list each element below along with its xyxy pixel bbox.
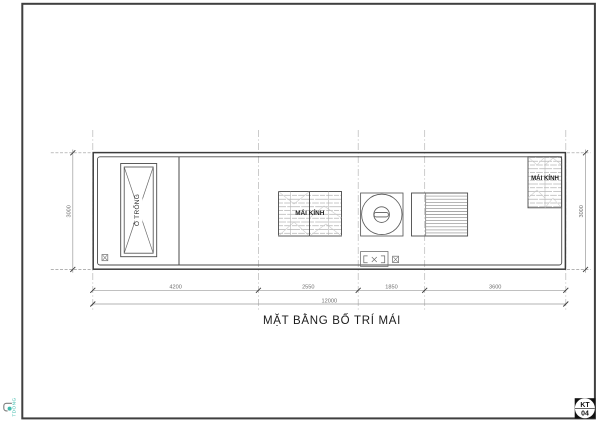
svg-text:KT: KT [580, 402, 590, 409]
svg-text:04: 04 [581, 411, 589, 418]
svg-text:MẶT BẰNG BỐ TRÍ MÁI: MẶT BẰNG BỐ TRÍ MÁI [263, 313, 401, 327]
svg-text:MÁI KÍNH: MÁI KÍNH [295, 208, 324, 217]
svg-text:2550: 2550 [302, 285, 314, 291]
svg-text:3000: 3000 [579, 205, 585, 217]
svg-text:1850: 1850 [385, 285, 397, 291]
svg-text:4200: 4200 [169, 285, 181, 291]
svg-text:MÁI KÍNH: MÁI KÍNH [531, 174, 559, 182]
svg-text:12000: 12000 [322, 298, 338, 304]
svg-text:3000: 3000 [67, 205, 73, 217]
svg-text:3600: 3600 [489, 285, 501, 291]
svg-text:TDONG: TDONG [11, 397, 17, 416]
